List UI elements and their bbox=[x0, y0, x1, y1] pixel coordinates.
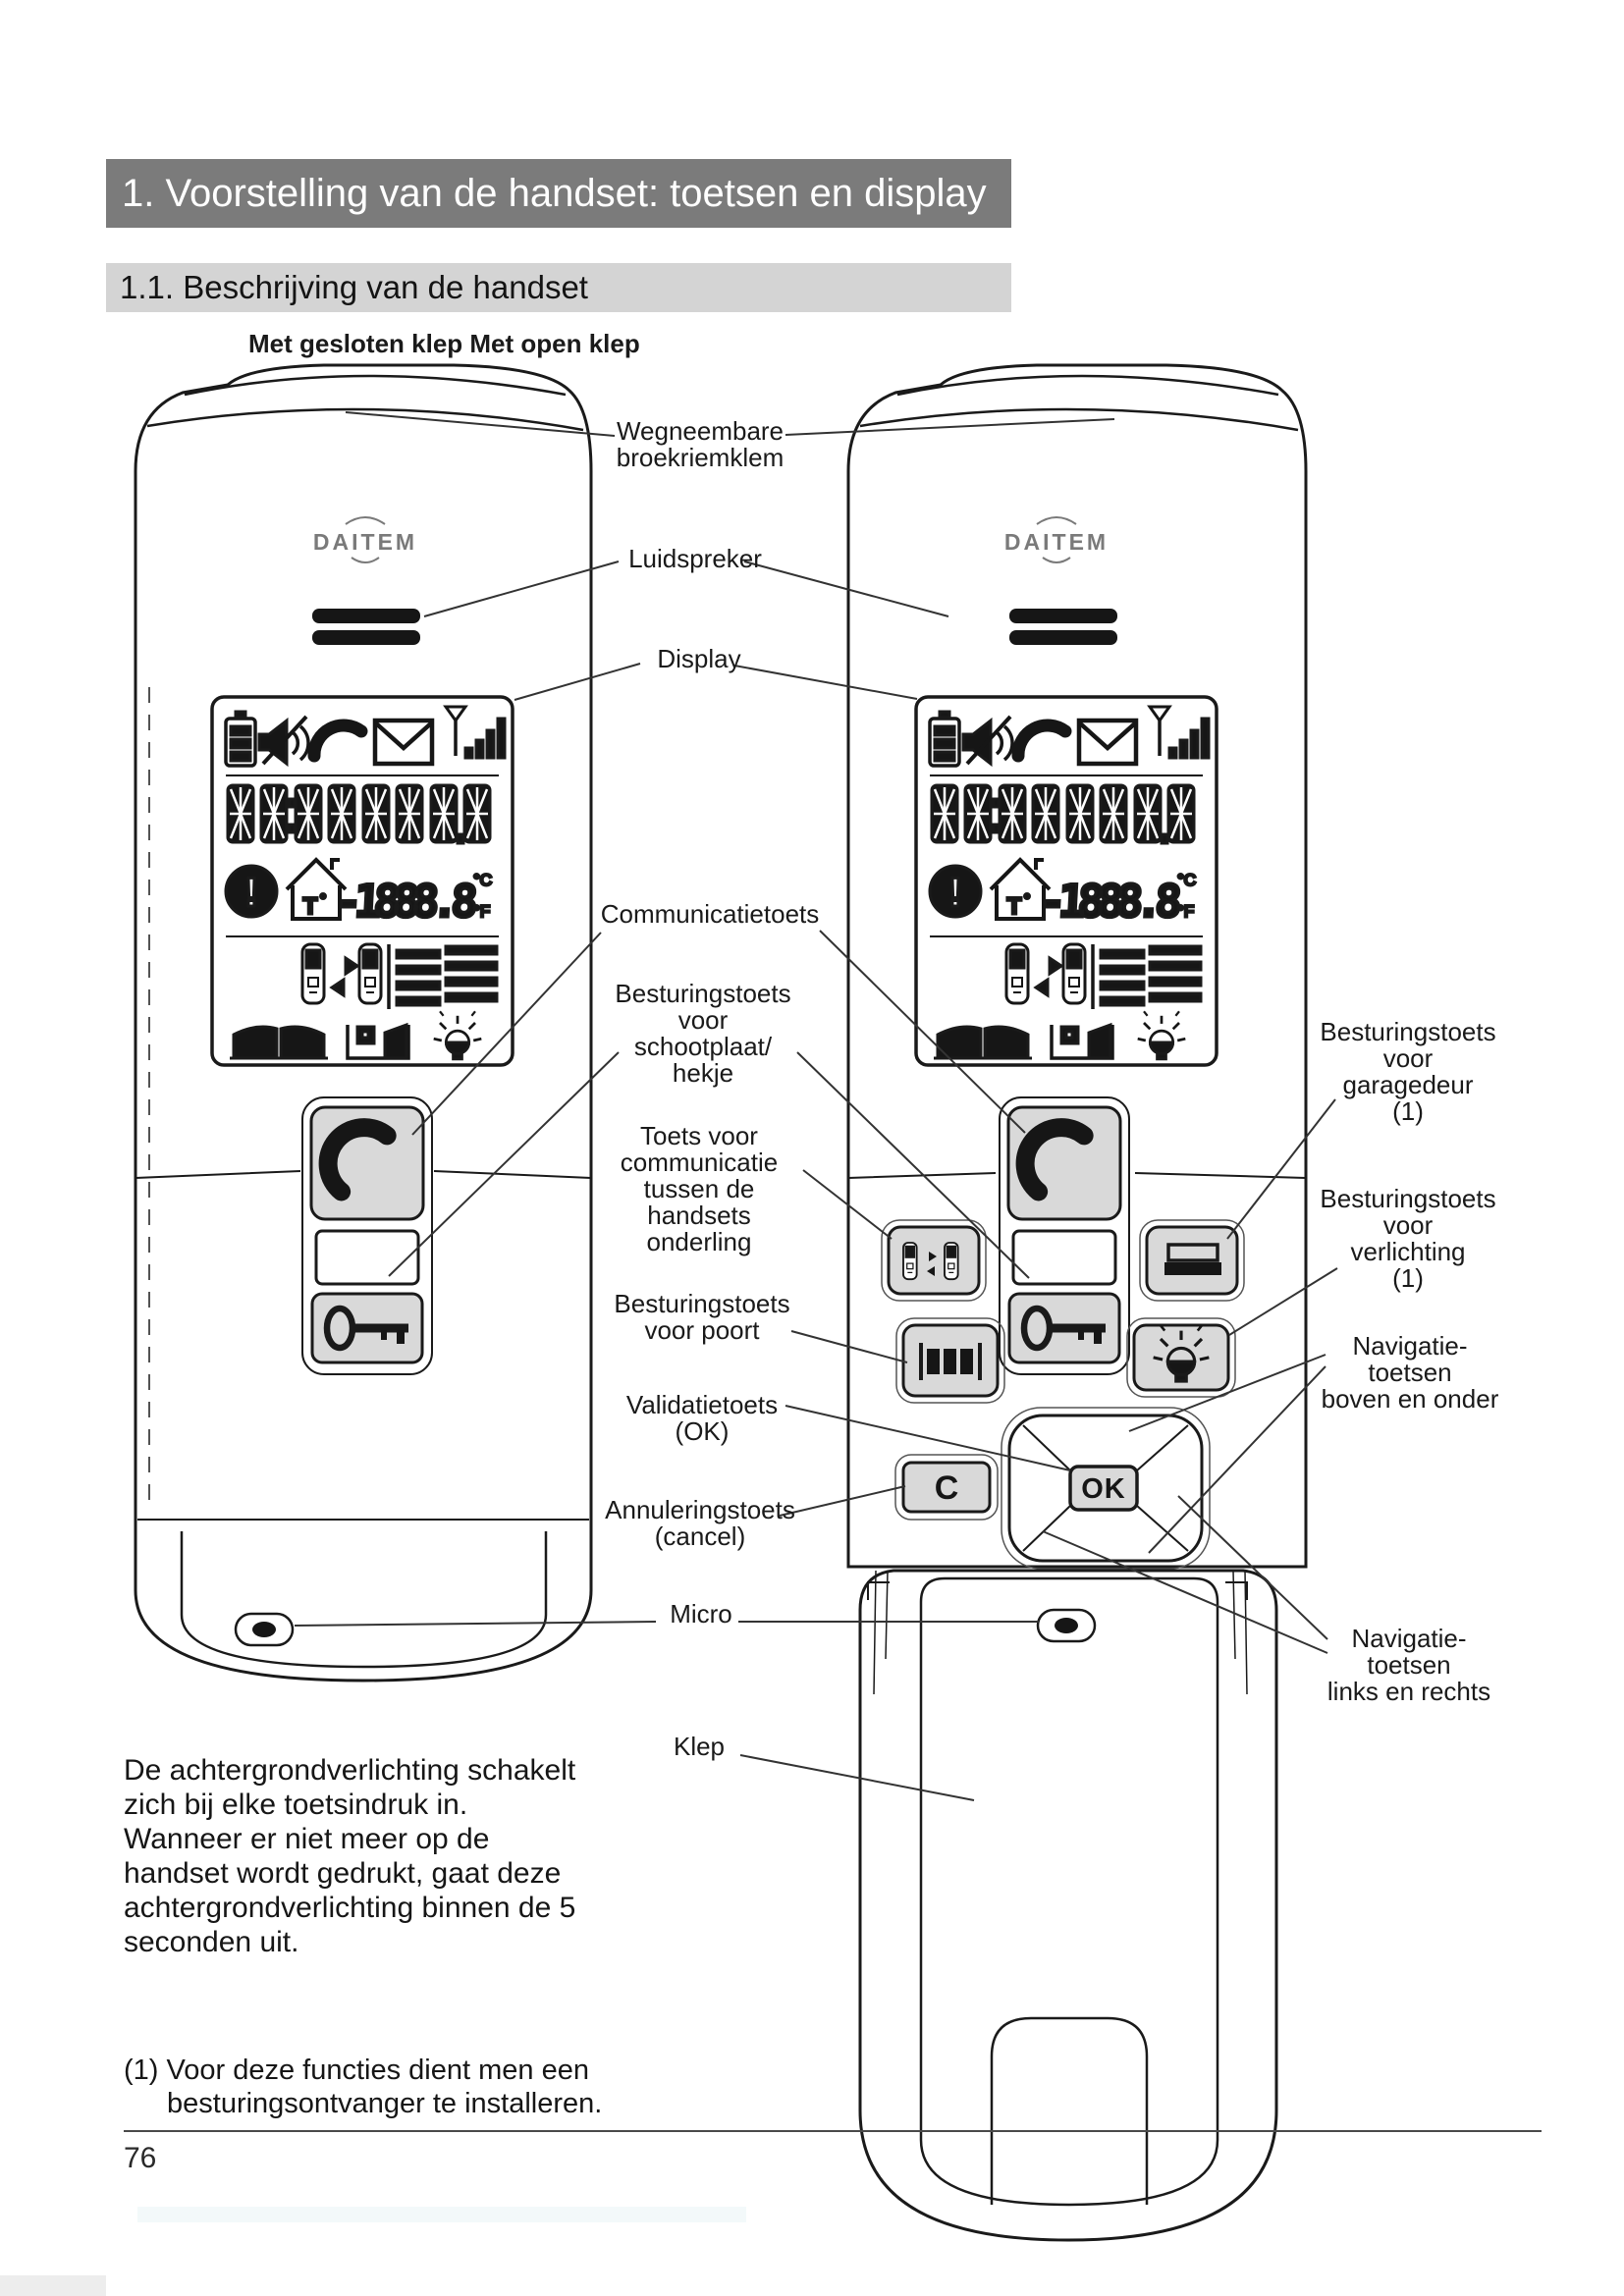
gate-key bbox=[896, 1318, 1004, 1403]
label-validation: Validatietoets (OK) bbox=[626, 1392, 778, 1445]
latch-key bbox=[312, 1294, 422, 1362]
intercom-key bbox=[882, 1220, 986, 1301]
ok-key-letters: OK bbox=[1081, 1473, 1126, 1505]
blank-key bbox=[316, 1231, 418, 1284]
ok-key: OK bbox=[1070, 1467, 1137, 1510]
label-garage: Besturingstoets voor garagedeur (1) bbox=[1320, 1019, 1495, 1125]
latch-key bbox=[1009, 1294, 1119, 1362]
body-paragraph: De achtergrondverlichting schakelt zich … bbox=[124, 1753, 575, 1959]
manual-page: 1. Voorstelling van de handset: toetsen … bbox=[0, 0, 1624, 2296]
light-key bbox=[1127, 1318, 1235, 1397]
footer-rule bbox=[124, 2130, 1542, 2132]
cancel-key-letter: C bbox=[935, 1469, 959, 1507]
label-nav-vertical: Navigatie- toetsen boven en onder bbox=[1322, 1333, 1499, 1413]
label-light: Besturingstoets voor verlichting (1) bbox=[1320, 1186, 1495, 1292]
label-clip: Wegneembare broekriemklem bbox=[617, 418, 785, 471]
cancel-key: C bbox=[895, 1455, 998, 1520]
microphone bbox=[1038, 1610, 1095, 1641]
communication-key bbox=[1008, 1107, 1120, 1219]
brand-name: DAITEM bbox=[1004, 529, 1109, 555]
garage-door-key bbox=[1140, 1220, 1244, 1301]
handset-open: DAITEM bbox=[848, 365, 1306, 2240]
watermark-strip bbox=[137, 2207, 746, 2222]
brand-name: DAITEM bbox=[313, 529, 417, 555]
label-latch: Besturingstoets voor schootplaat/ hekje bbox=[615, 981, 790, 1087]
page-number: 76 bbox=[124, 2142, 156, 2175]
label-gate: Besturingstoets voor poort bbox=[614, 1291, 789, 1344]
label-nav-horizontal: Navigatie- toetsen links en rechts bbox=[1327, 1626, 1490, 1705]
label-intercom: Toets voor communicatie tussen de handse… bbox=[621, 1123, 778, 1255]
label-communication: Communicatietoets bbox=[601, 901, 820, 928]
handset-closed: DAITEM bbox=[135, 365, 591, 1681]
label-flap: Klep bbox=[674, 1734, 725, 1760]
microphone bbox=[236, 1614, 293, 1645]
corner-box bbox=[0, 2275, 106, 2296]
label-speaker: Luidspreker bbox=[628, 546, 762, 572]
label-display: Display bbox=[657, 646, 740, 672]
footnote: (1) Voor deze functies dient men een bes… bbox=[124, 2054, 602, 2120]
open-flap bbox=[860, 1571, 1276, 2240]
blank-key bbox=[1013, 1231, 1115, 1284]
communication-key bbox=[311, 1107, 423, 1219]
label-cancel: Annuleringstoets (cancel) bbox=[605, 1497, 795, 1550]
label-micro: Micro bbox=[670, 1601, 732, 1628]
